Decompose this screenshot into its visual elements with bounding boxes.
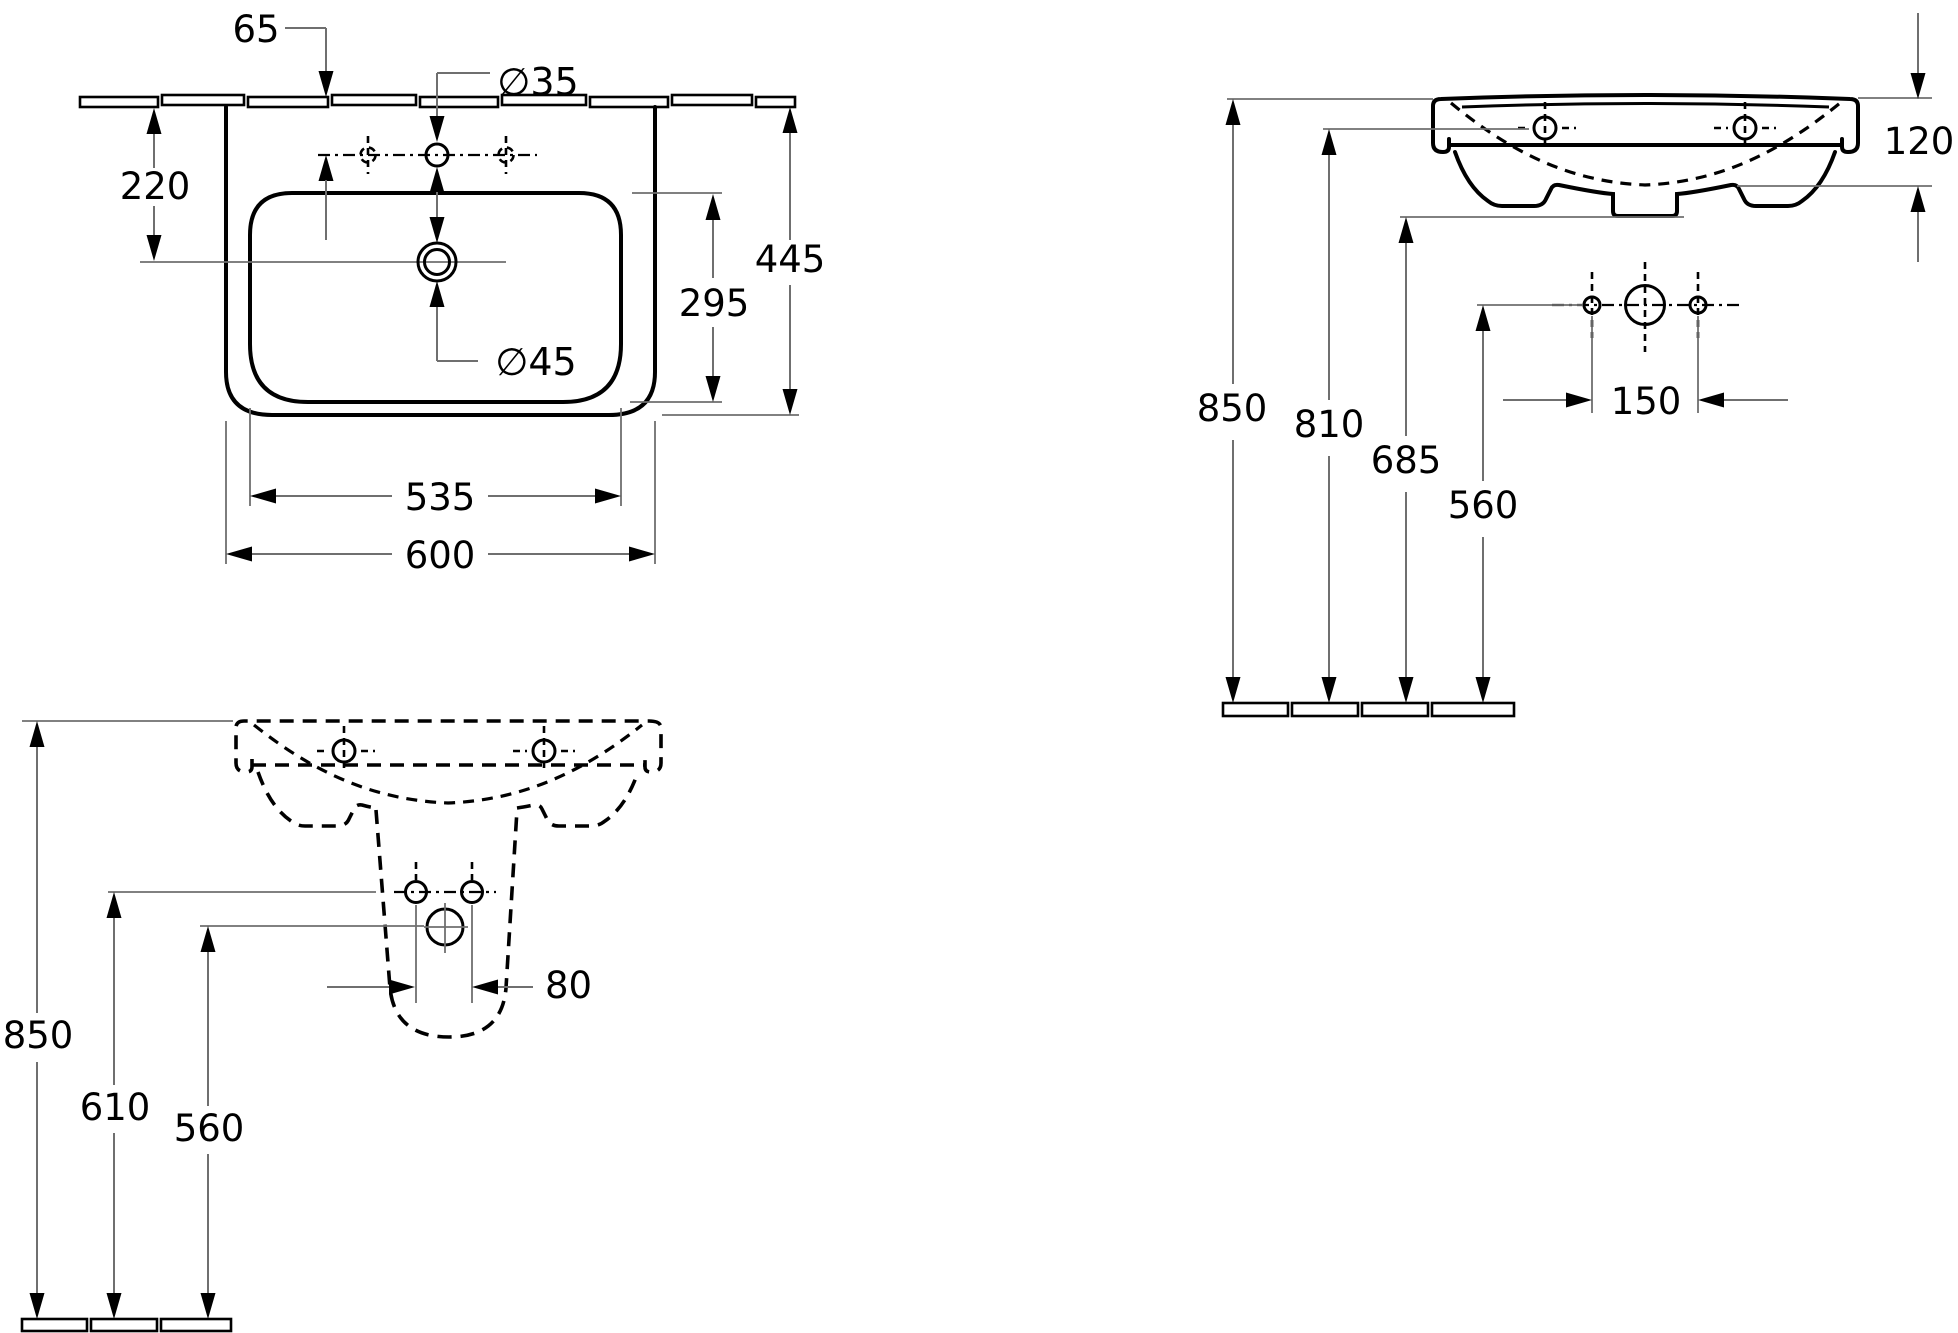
install-underbody-left — [258, 772, 376, 826]
dim-label-drain-diameter: ∅45 — [495, 340, 576, 384]
dim-label-drain-offset: 220 — [120, 165, 191, 208]
trap-connection-icon — [424, 903, 468, 953]
fitting-hole-group — [1552, 262, 1742, 352]
install-floor-line — [22, 1319, 231, 1331]
dim-295: 295 — [630, 193, 749, 402]
dim-850-front: 850 — [1197, 99, 1268, 703]
plan-view: 65 ∅35 ∅45 220 — [80, 8, 825, 577]
dim-445: 445 — [662, 107, 825, 415]
washbasin-outer-outline — [226, 107, 655, 415]
tap-holes — [318, 136, 537, 174]
install-fixing-holes — [317, 726, 575, 768]
dim-label-rim-height: 850 — [1197, 387, 1268, 430]
front-rim-inner-edge — [1462, 104, 1829, 108]
dim-220: 220 — [120, 108, 191, 261]
dim-label-tap-diameter: ∅35 — [497, 60, 578, 104]
dim-label-bowl-width: 535 — [405, 476, 476, 519]
dim-label-bowl-depth: 295 — [679, 282, 750, 325]
dim-610: 610 — [80, 892, 151, 1319]
front-view: 120 850 810 685 560 — [1197, 13, 1955, 716]
dim-label-install-rim-height: 850 — [3, 1014, 74, 1057]
pedestal-bolt-holes — [394, 862, 496, 903]
dim-560-front: 560 — [1448, 305, 1519, 703]
dim-label-overall-depth: 445 — [755, 238, 826, 281]
dim-d45: ∅45 — [430, 217, 577, 384]
dim-65: 65 — [232, 8, 333, 240]
installation-view: 850 610 560 80 — [3, 721, 661, 1331]
front-floor-line — [1223, 703, 1514, 716]
dim-label-tap-offset: 65 — [232, 8, 279, 51]
dim-560-install: 560 — [174, 926, 245, 1319]
front-fixing-holes — [1518, 102, 1776, 146]
dim-label-trap-height: 560 — [174, 1107, 245, 1150]
dim-80: 80 — [327, 964, 592, 1007]
dim-685: 685 — [1371, 217, 1442, 703]
dim-label-overall-width: 600 — [405, 534, 476, 577]
install-underbody-right — [517, 772, 638, 826]
dim-label-fitting-hole-spacing: 150 — [1611, 380, 1682, 423]
dim-label-fitting-hole-height: 560 — [1448, 484, 1519, 527]
dim-850-install: 850 — [3, 721, 74, 1319]
dim-810: 810 — [1294, 129, 1365, 703]
dim-label-bolt-hole-height: 610 — [80, 1086, 151, 1129]
dim-label-body-bottom-height: 685 — [1371, 439, 1442, 482]
dim-label-fixing-hole-height: 810 — [1294, 403, 1365, 446]
siphon-cover-hidden — [376, 810, 517, 1037]
dim-label-bowl-inner-depth: 120 — [1884, 120, 1955, 163]
dim-120: 120 — [1884, 13, 1955, 262]
drain-icon — [140, 243, 506, 281]
washbasin-technical-drawing: 65 ∅35 ∅45 220 — [0, 0, 1958, 1333]
dim-150: 150 — [1503, 380, 1788, 423]
dim-label-bolt-hole-spacing: 80 — [545, 964, 592, 1007]
dim-535: 535 — [250, 408, 621, 519]
